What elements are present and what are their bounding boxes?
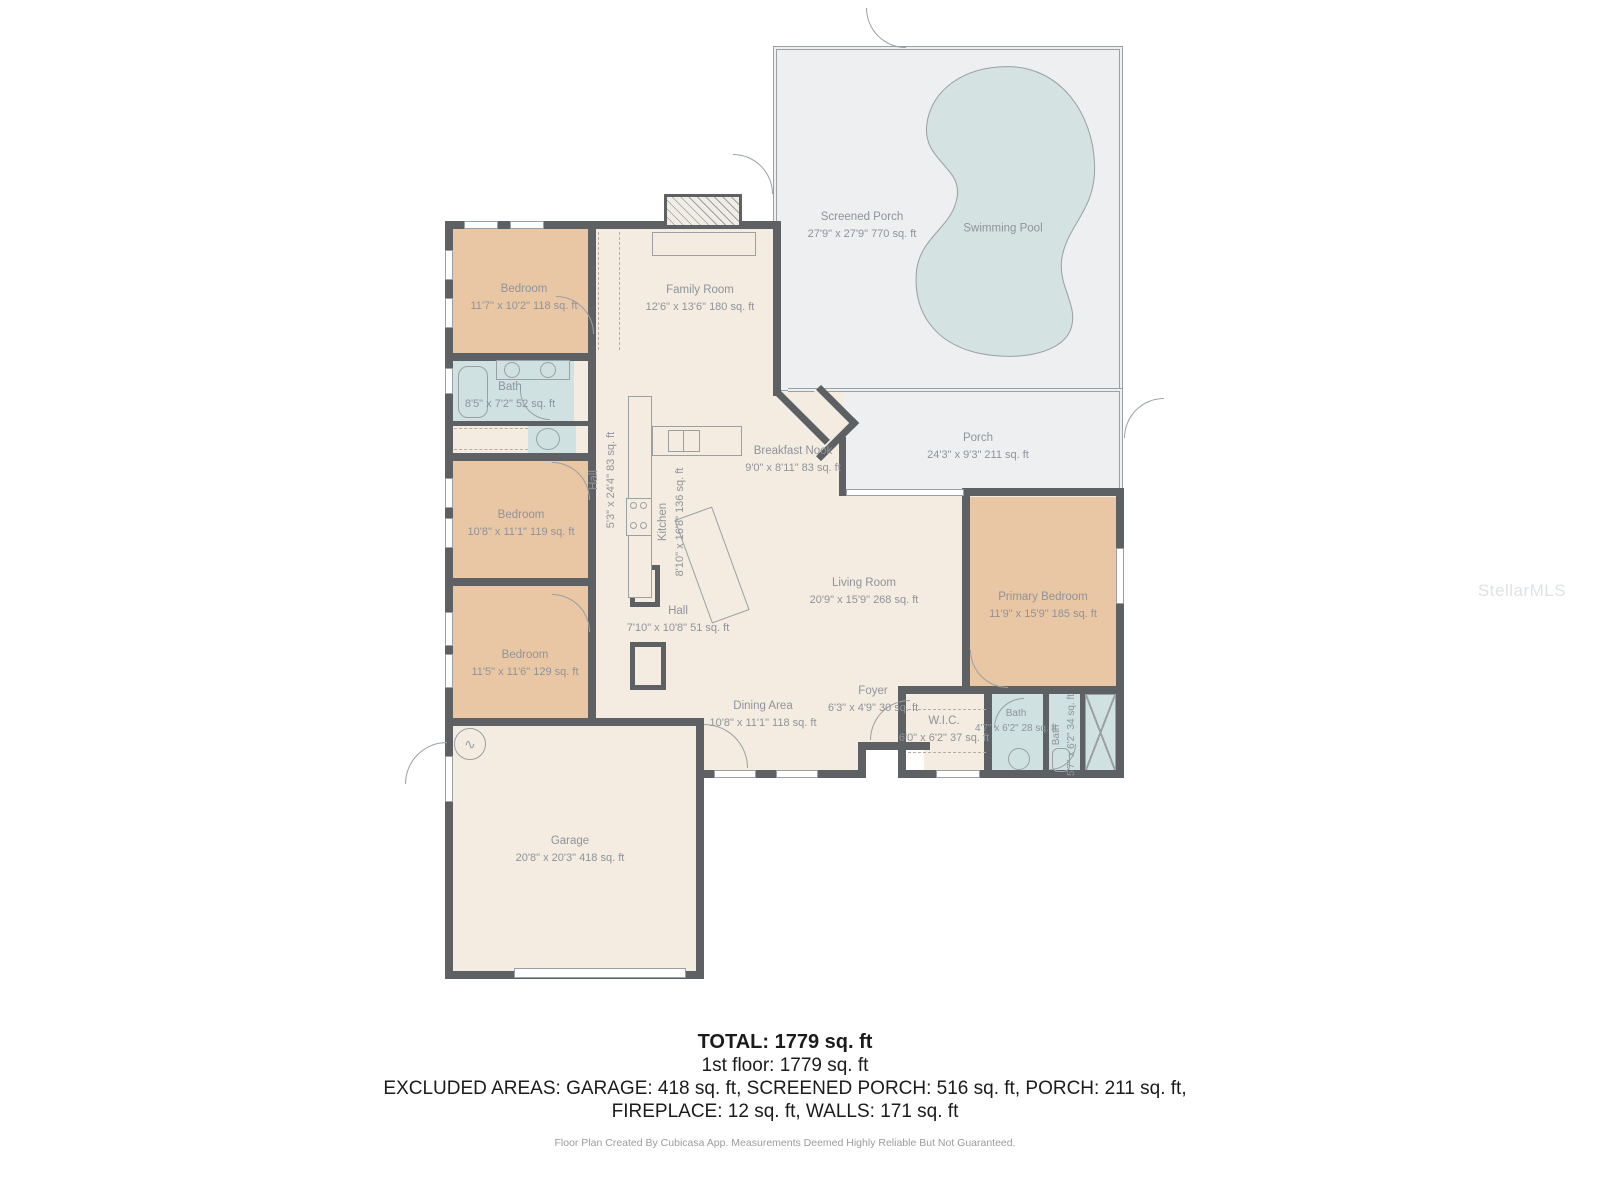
door-arc-screened-porch-top: [866, 8, 906, 48]
stellar-mls-watermark: StellarMLS: [1478, 581, 1566, 601]
wic-shelf-bottom-dashes: [908, 752, 986, 762]
burner-a: [630, 502, 637, 509]
sliding-door-porch: [846, 489, 964, 496]
floor-plan-canvas: ∿ Screened Porch27'9" x 27'9" 770 sq. ft…: [0, 0, 1600, 1200]
first-floor-line: 1st floor: 1779 sq. ft: [383, 1054, 1186, 1077]
area-summary: TOTAL: 1779 sq. ft 1st floor: 1779 sq. f…: [383, 1031, 1186, 1123]
wall-primary-left: [962, 488, 970, 694]
room-label-dining-area: Dining Area10'8" x 11'1" 118 sq. ft: [709, 698, 816, 732]
window-bath1-left: [445, 368, 453, 394]
room-label-hall-long: Hall5'3" x 24'4" 83 sq. ft: [586, 432, 620, 528]
toilet-fixture-1: [536, 428, 560, 450]
garage-door: [514, 968, 686, 978]
excluded-areas-line-1: EXCLUDED AREAS: GARAGE: 418 sq. ft, SCRE…: [383, 1077, 1186, 1100]
window-bed1-left-a: [445, 250, 453, 280]
room-label-porch: Porch24'3" x 9'3" 211 sq. ft: [927, 430, 1029, 464]
kitchen-sink: [668, 430, 700, 452]
room-label-kitchen: Kitchen8'10" x 16'8" 136 sq. ft: [655, 468, 689, 577]
window-bed3-left-a: [445, 612, 453, 646]
room-label-primary-bedroom: Primary Bedroom11'9" x 15'9" 185 sq. ft: [989, 589, 1097, 623]
room-label-bedroom-3: Bedroom11'5" x 11'6" 129 sq. ft: [471, 647, 578, 681]
wall-bed2-bed3: [445, 578, 596, 586]
wall-left: [445, 221, 453, 979]
window-wic-bottom: [936, 770, 980, 778]
excluded-areas-line-2: FIREPLACE: 12 sq. ft, WALLS: 171 sq. ft: [383, 1100, 1186, 1123]
room-label-breakfast-nook: Breakfast Nook9'0" x 8'11" 83 sq. ft: [745, 443, 841, 477]
room-label-garage: Garage20'8" x 20'3" 418 sq. ft: [516, 833, 625, 867]
sink-fixture-a: [504, 362, 520, 378]
wall-familyroom-right: [773, 221, 781, 396]
wall-bath3-shower: [1080, 686, 1085, 778]
sink-fixture-b: [540, 362, 556, 378]
window-bed2-left-b: [445, 518, 453, 548]
room-label-bedroom-1: Bedroom11'7" x 10'2" 118 sq. ft: [470, 281, 577, 315]
room-label-hall-short: Hall7'10" x 10'8" 51 sq. ft: [627, 603, 730, 637]
window-bed2-left-a: [445, 478, 453, 508]
disclaimer-footer: Floor Plan Created By Cubicasa App. Meas…: [554, 1137, 1015, 1149]
burner-b: [640, 502, 647, 509]
room-label-bath-2: Bath4'7" x 6'2" 28 sq. ft: [975, 706, 1057, 736]
kitchen-sink-divider: [683, 431, 684, 451]
room-label-swimming-pool: Swimming Pool: [963, 220, 1042, 237]
room-label-bath-3: Bath5'7" x 6'2" 34 sq. ft: [1049, 694, 1079, 776]
burner-c: [630, 522, 637, 529]
window-bed1-left-b: [445, 298, 453, 328]
toilet-fixture-2: [1008, 748, 1030, 770]
shower-stall: [1085, 694, 1116, 771]
room-label-bedroom-2: Bedroom10'8" x 11'1" 119 sq. ft: [467, 507, 574, 541]
room-label-living-room: Living Room20'9" x 15'9" 268 sq. ft: [810, 575, 919, 609]
window-primary-right: [1116, 548, 1124, 604]
window-dining-bottom-a: [714, 770, 756, 778]
water-heater-fixture: ∿: [454, 728, 486, 760]
window-bed3-left-b: [445, 654, 453, 688]
wall-right: [1116, 488, 1124, 778]
wall-garage-right: [696, 718, 704, 979]
wall-garage-top: [445, 718, 704, 726]
room-label-foyer: Foyer6'3" x 4'9" 30 sq. ft: [828, 683, 918, 717]
window-bed1-top-b: [510, 221, 544, 229]
hall-closet-dashes: [454, 428, 528, 450]
wall-suite-divider: [898, 686, 1124, 694]
room-label-bath-1: Bath8'5" x 7'2" 52 sq. ft: [465, 379, 555, 413]
window-dining-bottom-b: [776, 770, 818, 778]
door-arc-garage-side: [405, 742, 447, 784]
wall-wic-bottom: [898, 770, 1124, 778]
wall-primary-top: [962, 488, 1124, 496]
bed1-closet-dashes: [598, 232, 620, 350]
total-area-line: TOTAL: 1779 sq. ft: [383, 1031, 1186, 1054]
door-arc-screened-porch-left: [733, 154, 773, 194]
hearth: [652, 232, 756, 256]
wall-bath-closet: [445, 421, 596, 426]
burner-d: [640, 522, 647, 529]
door-arc-porch-right: [1124, 398, 1164, 438]
room-label-screened-porch: Screened Porch27'9" x 27'9" 770 sq. ft: [808, 209, 917, 243]
window-bed1-top-a: [464, 221, 498, 229]
kitchen-counter: [628, 396, 652, 598]
wall-bed2-top: [445, 453, 596, 461]
fireplace: [664, 194, 742, 228]
room-label-family-room: Family Room12'6" x 13'6" 180 sq. ft: [646, 282, 755, 316]
swimming-pool-shape: [905, 62, 1100, 362]
hall-closet-box: [630, 642, 666, 690]
